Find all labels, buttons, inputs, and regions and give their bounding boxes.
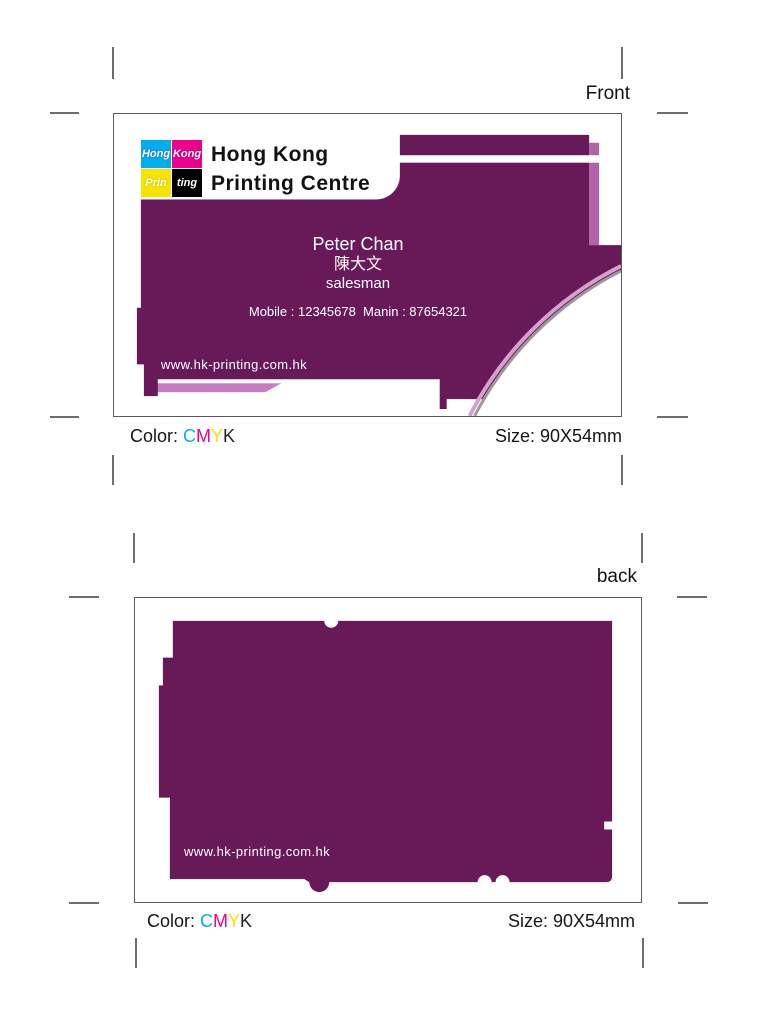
phone-numbers: Mobile : 12345678 Manin : 87654321 [243,304,473,319]
pink-accent-stripe [152,383,281,392]
crop-mark [50,112,79,114]
cmyk-k: K [240,911,252,931]
logo-tile-hong: Hong [141,140,171,168]
business-card-back: www.hk-printing.com.hk [134,597,642,903]
crop-mark [657,416,688,418]
logo-tile-kong: Kong [172,140,202,168]
person-name: Peter Chan [243,234,473,255]
person-name-chinese: 陳大文 [243,255,473,275]
crop-mark [69,902,99,904]
cmyk-k: K [223,426,235,446]
cmyk-y: Y [211,426,223,446]
crop-mark [677,596,707,598]
front-side-label: Front [430,83,630,105]
crop-mark [135,938,137,968]
print-proof-sheet: Front Hong Kong Prin ting Hong Kong Prin… [0,0,759,1024]
company-logo: Hong Kong Prin ting [141,140,202,197]
person-title: salesman [243,275,473,293]
logo-tile-prin: Prin [141,169,171,197]
color-label: Color: [147,911,195,931]
cmyk-c: C [200,911,213,931]
crop-mark [621,47,623,79]
white-stripe [399,155,599,162]
back-color-info: Color: CMYK [147,911,252,932]
website-url: www.hk-printing.com.hk [161,357,307,372]
cmyk-m: M [196,426,211,446]
website-url: www.hk-printing.com.hk [184,844,330,859]
front-color-info: Color: CMYK [130,426,235,447]
crop-mark [641,533,643,563]
cmyk-m: M [213,911,228,931]
business-card-front: Hong Kong Prin ting Hong Kong Printing C… [113,113,622,417]
cmyk-letters: CMYK [183,426,235,446]
crop-mark [69,596,99,598]
crop-mark [112,47,114,79]
crop-mark [133,533,135,563]
crop-mark [657,112,688,114]
cmyk-letters: CMYK [200,911,252,931]
back-side-label: back [437,566,637,588]
crop-mark [621,455,623,485]
contact-block: Peter Chan 陳大文 salesman Mobile : 1234567… [243,234,473,319]
company-name-line2: Printing Centre [211,172,370,196]
back-size-info: Size: 90X54mm [413,911,635,932]
cmyk-y: Y [228,911,240,931]
front-size-info: Size: 90X54mm [400,426,622,447]
crop-mark [678,902,708,904]
cmyk-c: C [183,426,196,446]
logo-tile-ting: ting [172,169,202,197]
company-name-line1: Hong Kong [211,143,329,167]
crop-mark [642,938,644,968]
crop-mark [50,416,79,418]
crop-mark [112,455,114,485]
color-label: Color: [130,426,178,446]
